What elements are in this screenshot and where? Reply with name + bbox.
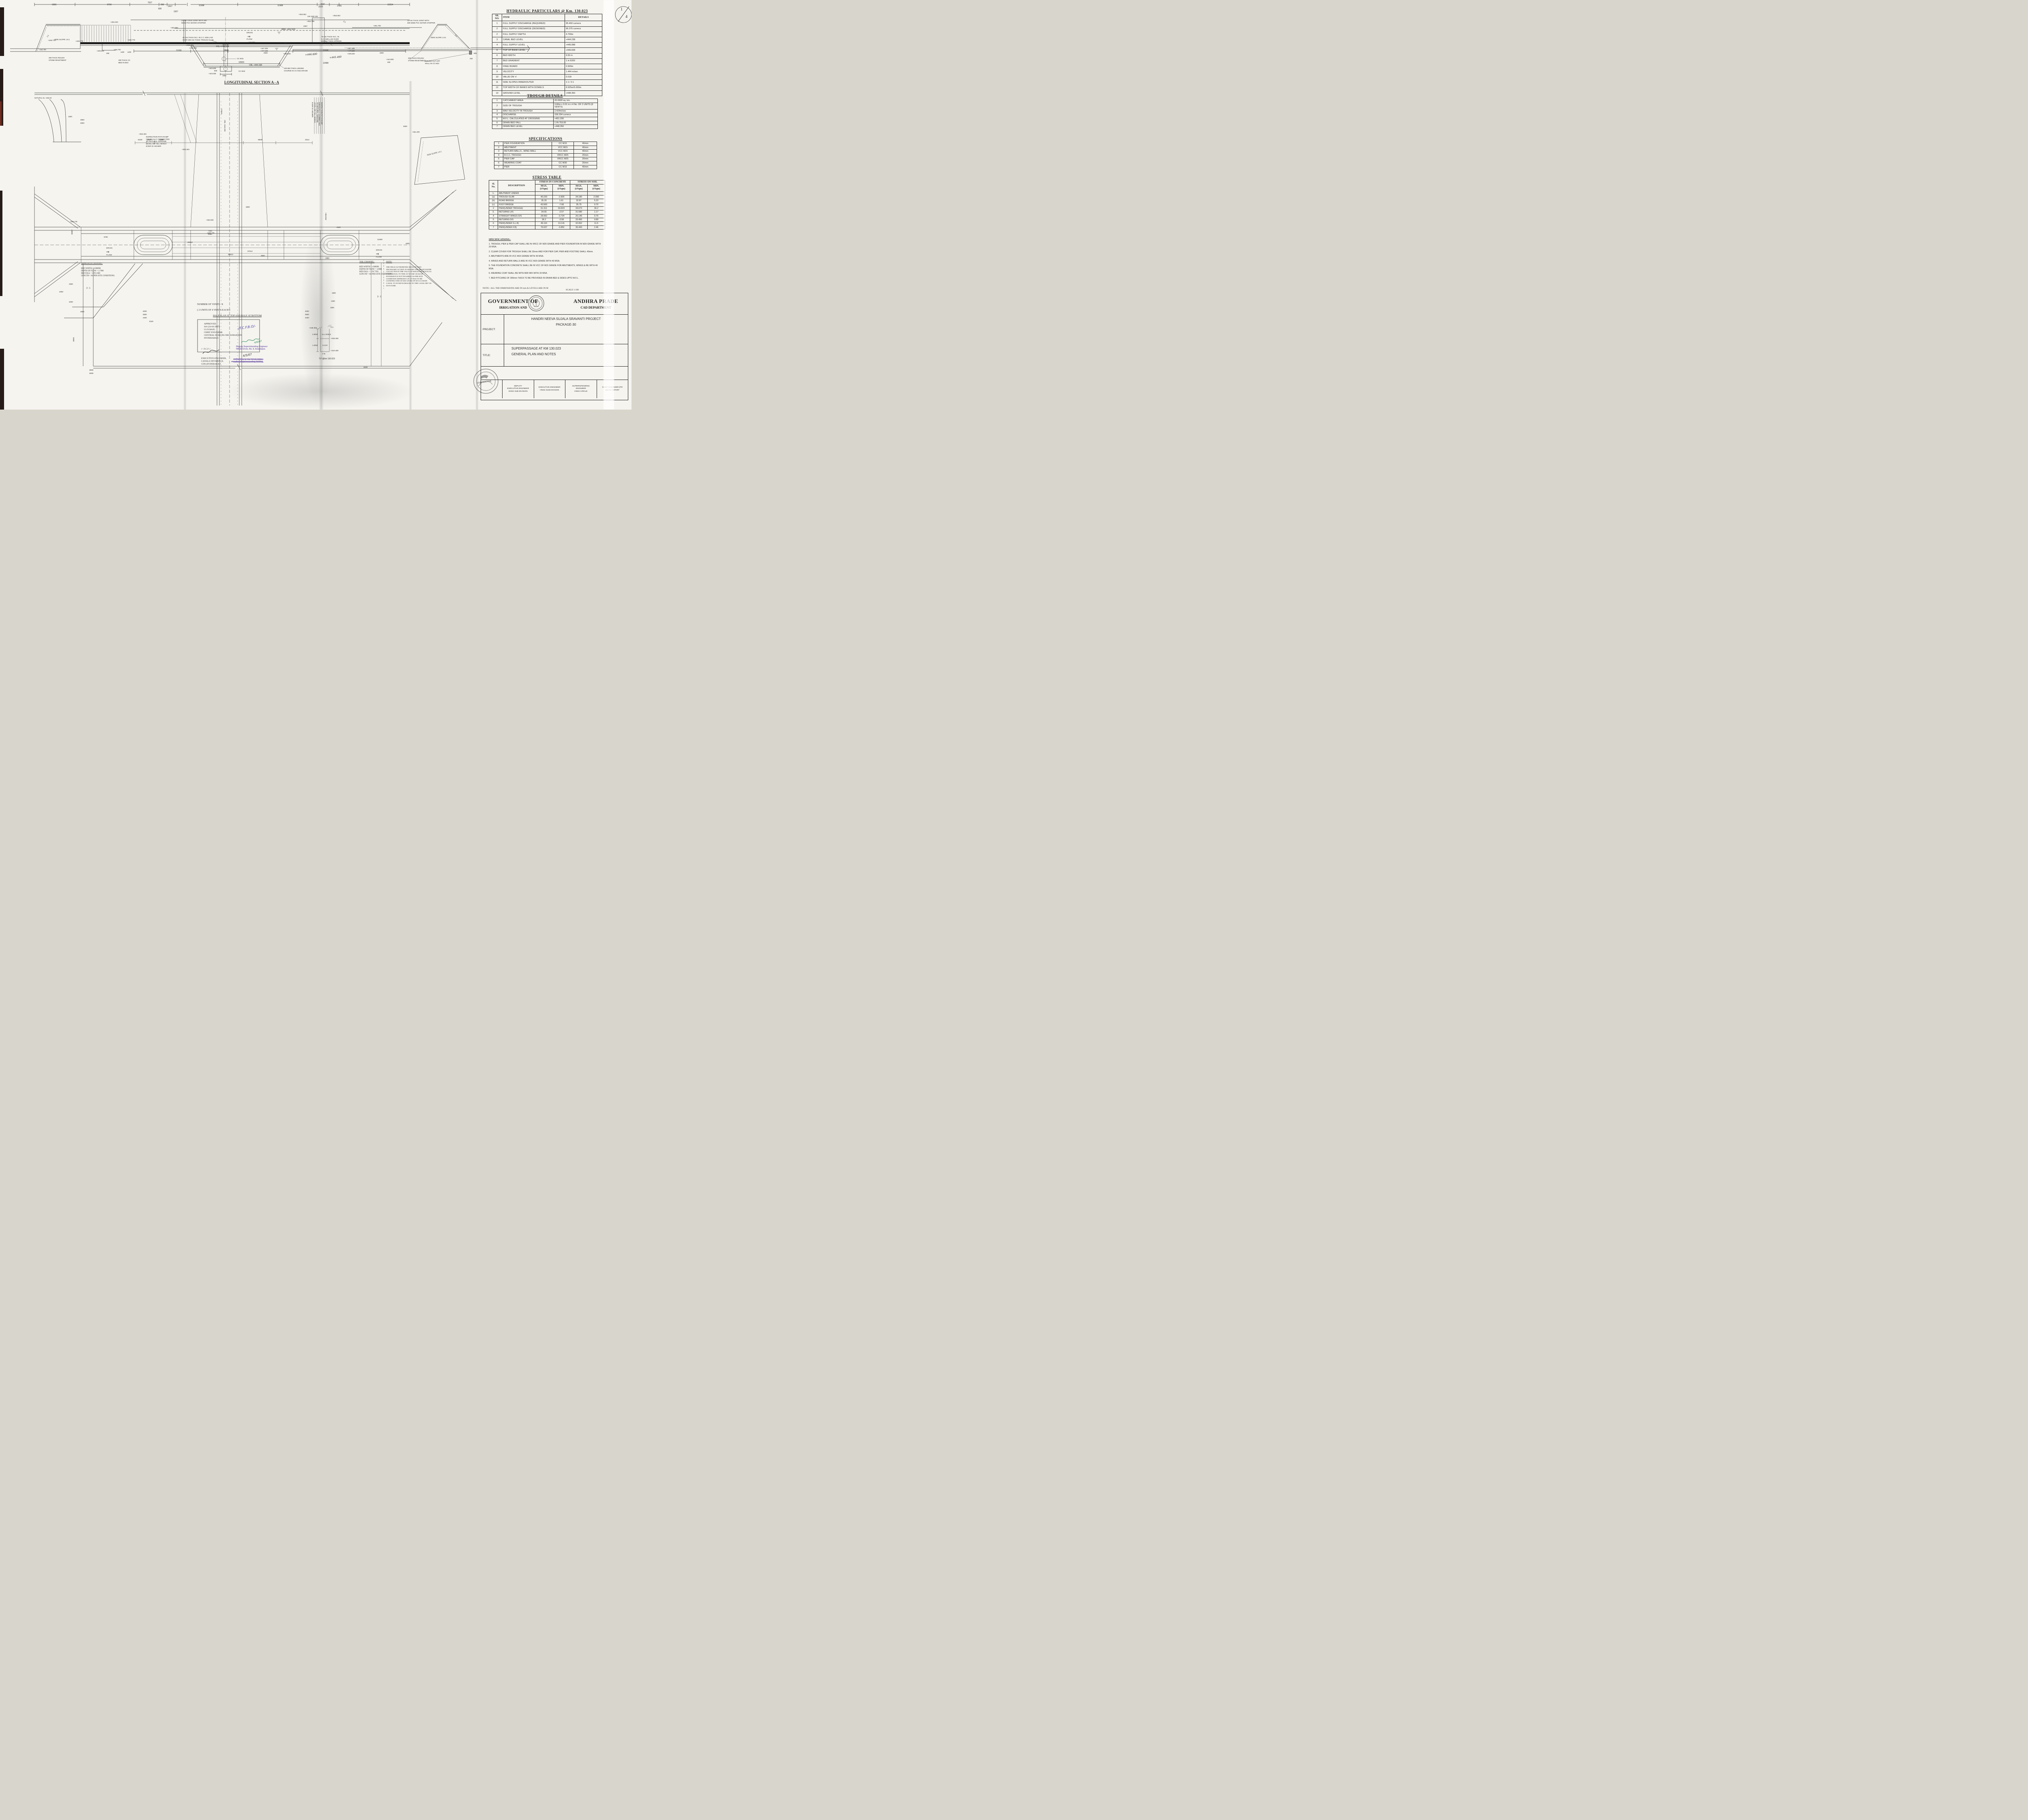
cell-details: 2.424m/sec	[554, 109, 598, 113]
cell-no: 3	[492, 37, 502, 42]
annotation-label: 2427	[168, 5, 172, 8]
cell-description: STRAIGHT WINGS D/S	[498, 214, 535, 218]
annotation-label: +449.778	[207, 232, 214, 234]
annotation-label: ⇒	[376, 252, 379, 256]
cell-item: BED GRADIENT	[502, 58, 565, 64]
project-row: PROJECT: HANDRI NEEVA SUJALA SRAVANTI PR…	[481, 315, 628, 344]
cell-concrete-max: 43.500	[535, 203, 553, 206]
annotation-label: +451.700	[373, 25, 381, 27]
annotation-label: 2000	[59, 291, 63, 293]
annotation-label: +449.388	[186, 44, 193, 47]
org-left: GOVERNMENT OF IRRIGATION AND	[481, 298, 545, 309]
cell-soil-max: 26.149	[570, 214, 588, 218]
annotation-label: 7238	[159, 139, 163, 142]
annotation-label: +452.500	[206, 219, 213, 221]
annotation-label: ALL SOILS	[322, 333, 331, 336]
annotation-label: 2600	[337, 226, 341, 229]
org-name-left: GOVERNMENT OF	[481, 298, 545, 305]
hydraulic-particulars-table: HYDRAULIC PARTICULARS @ Km. 130.023 SR. …	[492, 9, 602, 96]
cell-details: +444.238	[565, 37, 602, 42]
annotation-label: // .T.C.F //	[201, 348, 211, 351]
table-row: 1 PIER FOUNDATION CC M15 40mm	[494, 142, 597, 146]
cell-item: TOP WIDTH OF BANKS WITH DOWELS	[502, 85, 565, 90]
annotation-label: +448.350	[309, 327, 317, 329]
table-row: 1 FULL SUPPLY DISCHARGE (REQUIRED) 95.46…	[492, 21, 602, 26]
annotation-label: 3900	[80, 119, 84, 121]
annotation-label: 9500	[258, 139, 262, 142]
cell-no: 2	[489, 206, 498, 210]
annotation-label: 4400	[143, 317, 147, 319]
cell-details: 0.018	[565, 75, 602, 80]
cell-item: WEARING COAT	[503, 161, 552, 165]
cell-details: +448.350	[554, 125, 598, 129]
spec-note-item: 6. WEARING COAT SHALL BE WITH M30 MIX WI…	[489, 272, 603, 275]
annotation-label: CC M15	[237, 58, 243, 60]
annotation-label: +443.638	[208, 67, 216, 70]
cell-concrete-min: -2.830	[553, 195, 570, 199]
annotation-label: +444.800	[386, 58, 393, 61]
stress-title: STRESS TABLE	[489, 175, 605, 179]
col-header-slno: Sl. No.	[489, 180, 498, 192]
annotation-label: 600	[474, 52, 477, 55]
annotation-label: 600	[158, 8, 161, 10]
annotation-label: 3600	[80, 311, 84, 313]
cell-no: 9	[492, 69, 502, 75]
annotation-label: SIDE SLOPE 1.5:1	[431, 36, 446, 39]
table-row: 6 WEARING COAT CC M30 20mm	[494, 161, 597, 165]
annotation-label: CC M15	[238, 70, 245, 73]
cell-concrete-max: 76.637	[535, 225, 553, 229]
annotation-label: +449.088	[189, 47, 197, 49]
signatory-ce: CHIEF ENGINEER (PR I&CAD DEPART	[597, 380, 628, 398]
cell-details: +449.088	[565, 43, 602, 48]
cell-no: 7	[489, 225, 498, 229]
cell-item: ABUTMENT	[503, 146, 552, 150]
annotation-label: +453.403	[110, 21, 118, 24]
cell-item: FULL SUPPLY DEPTH	[502, 32, 565, 37]
table-row: 2 FULL SUPPLY DEPTH 4.700m	[492, 32, 602, 37]
dept-name-left: IRRIGATION AND	[481, 306, 545, 309]
annotation-label: 1800	[332, 292, 336, 294]
annotation-label: 35612	[187, 241, 193, 244]
cell-item: CATCHMENT AREA	[502, 99, 554, 103]
annotation-label: FSL +448.938	[216, 45, 229, 48]
annotation-label: 12480	[377, 238, 382, 241]
cell-concrete-max: 36.2	[535, 218, 553, 221]
cell-size: 20mm	[574, 161, 597, 165]
cell-description: PIER(UNDER F.B)	[498, 225, 535, 229]
cell-no: 4	[492, 113, 502, 117]
annotation-label: 1000	[224, 49, 228, 52]
annotation-label: 4500	[406, 243, 410, 245]
cell-description: PIER(UNDER S.L.B)	[498, 222, 535, 225]
annotation-label: +444.700	[39, 49, 46, 51]
cell-no: 2	[492, 103, 502, 109]
annotation-label: +453.403	[139, 133, 146, 135]
annotation-label: 37612	[247, 250, 253, 253]
annotation-label: 43000	[71, 230, 73, 234]
cell-no: 3	[494, 150, 503, 154]
table-row: 3. RETURNS U/S 34.55 -2.57 31.580 1.17	[489, 210, 605, 214]
table-row: 2 ABUTMENT VCC M15 40mm	[494, 146, 597, 150]
annotation-label: 4400	[305, 317, 309, 319]
cell-details: 1:1 / 2:1	[565, 80, 602, 85]
annotation-label: 1400	[120, 51, 124, 53]
title-block-header: GOVERNMENT OF IRRIGATION AND ANDHRA PRAD…	[481, 293, 628, 315]
annotation-label: 3900	[89, 369, 93, 371]
spec-notes-heading: SPECIFICATIONS:-	[489, 238, 603, 242]
cell-item: M.F.L. CALCULATED AT CROSSING	[502, 117, 554, 121]
annotation-label: 7527	[148, 2, 152, 4]
longitudinal-section-linework	[10, 3, 530, 80]
cell-concrete-min: 1.61	[553, 199, 570, 203]
cell-grade: CC M15	[552, 142, 574, 146]
cell-details: 1.444 m/sec	[565, 69, 602, 75]
org-name-right: ANDHRA PRADE	[564, 298, 628, 305]
cell-no: 7	[492, 58, 502, 64]
cell-concrete-max	[535, 191, 553, 195]
table-row: 9 VELOCITY 1.444 m/sec	[492, 69, 602, 75]
annotation-label: 300 THICK ROUGH STONE REVETMENT	[408, 57, 425, 62]
cell-no: 7	[494, 165, 503, 169]
cell-no: 6	[489, 222, 498, 225]
annotation-label: 4	[625, 15, 627, 20]
annotation-label: F.R	[322, 353, 325, 355]
annotation-label: 8790	[104, 236, 108, 238]
cell-grade: CC M30	[552, 161, 574, 165]
cell-item: CANAL BED LEVEL	[502, 37, 565, 42]
annotation-label: 1800	[222, 75, 226, 77]
annotation-label: FLOW	[106, 254, 112, 257]
annotation-label: INSPECTION PATH RAMP GRADUALLY CONNECTED…	[311, 102, 323, 126]
annotation-label: 450	[470, 58, 473, 60]
spec-note-item: 2. CLEAR COVER FOR TROUGH SHALL BE 25mm …	[489, 251, 603, 254]
hydraulic-title: HYDRAULIC PARTICULARS @ Km. 130.023	[492, 9, 602, 13]
annotation-label: 1200	[127, 51, 131, 53]
table-row: 6 PIER(UNDER S.L.B) 49.116 13.141 32.062…	[489, 222, 605, 225]
table-row: 3 CANAL BED LEVEL +444.238	[492, 37, 602, 42]
annotation-label: +448.400	[97, 50, 104, 52]
table-row: 4 STRAIGHT WINGS D/S 28.992 -3.724 26.14…	[489, 214, 605, 218]
cell-concrete-max: 28.992	[535, 214, 553, 218]
cell-details: +451.200	[554, 117, 598, 121]
annotation-label: ⇒	[106, 250, 110, 254]
annotation-label: 12 mm THICK JOINT WITH 300 WIDE PVC WATE…	[407, 19, 435, 24]
cell-soil-min: 0.70	[588, 214, 605, 218]
annotation-label: 1300	[331, 300, 335, 303]
cell-size: 20mm	[574, 157, 597, 161]
annotation-label: +453.063	[299, 13, 306, 16]
annotation-label: 2225	[318, 6, 323, 8]
annotation-label: CANAL	[221, 109, 223, 115]
annotation-label: 3 : 1	[377, 296, 381, 298]
cell-item: R.C.C. TROUGH	[503, 153, 552, 157]
cell-details: 1 in 6200	[565, 58, 602, 64]
table-row: 1. ABUTMENT UNDER	[489, 191, 605, 195]
annotation-label: 11000	[323, 49, 329, 52]
annotation-label: 1500	[330, 307, 334, 309]
annotation-label: +447.225	[347, 50, 354, 52]
table-row: 3 RETURN WALLS , WING WALL VCC M15 40mm	[494, 150, 597, 154]
cell-no: 4	[494, 153, 503, 157]
cell-soil-max: 34.180	[570, 195, 588, 199]
cell-no: 5	[489, 218, 498, 221]
table-row: 1 CATCHMENT AREA 20.0600 sq. km.	[492, 99, 598, 103]
cell-item: RETURN WALLS , WING WALL	[503, 150, 552, 154]
cell-concrete-max: 49.116	[535, 222, 553, 225]
cell-description: ROAD BRIDGE	[498, 199, 535, 203]
annotation-label: +449.778	[75, 40, 83, 43]
table-row: 10 VALUE ON 'n' 0.018	[492, 75, 602, 80]
cell-item: FREE BOARD	[502, 64, 565, 69]
col-header-srno: SR. NO.	[492, 14, 502, 21]
cell-item: SIZE OF TROUGH	[502, 103, 554, 109]
cell-no: 1	[492, 21, 502, 26]
annotation-label: 2726	[337, 5, 342, 7]
page-number-circle	[615, 6, 632, 23]
annotation-label: 300 THICK ROUGH STONE REVETMENT	[49, 57, 66, 61]
table-row: 11 SIDE SLOPES INNER/OUTER 1:1 / 2:1	[492, 80, 602, 85]
cell-details: 0.900m	[565, 64, 602, 69]
annotation-label: HALF PLAN AT TOP AND HALF AT BOTTOM	[213, 315, 262, 318]
annotation-label: 2 : 1	[86, 287, 90, 290]
annotation-label: 3600	[305, 313, 309, 316]
cell-item: FULL SUPPLY DISCHARGE (DESIGNED)	[502, 26, 565, 32]
col-header-description: DESCRIPTION	[498, 180, 535, 192]
cell-size: 40mm	[574, 146, 597, 150]
annotation-label: 40 mm THICK W.C. IN C.C. M25 LAID OVER 2…	[183, 36, 213, 41]
annotation-label: 10500	[238, 61, 244, 64]
annotation-label: 300	[387, 61, 390, 64]
annotation-label: 2600	[264, 52, 268, 54]
cell-no: 1	[494, 142, 503, 146]
cell-no: 7	[492, 125, 502, 129]
col-header-item: ITEM	[502, 14, 565, 21]
annotation-label: LONGITUDINAL SECTION A - A	[224, 80, 279, 85]
col-header-smin: MIN. (t/Sqm)	[588, 185, 605, 191]
annotation-label: +446.625	[283, 53, 290, 55]
annotation-label: 2.90M	[312, 333, 318, 336]
cell-description: FOOT BRIDGE	[498, 203, 535, 206]
annotation-label: APPROACH CHANNEL:	[81, 263, 103, 265]
cell-no: 2	[494, 146, 503, 150]
annotation-label: Deputy Superintending Engineer HNSS Circ…	[231, 358, 263, 363]
annotation-label: +447.300	[260, 47, 268, 50]
cell-item: FULL SUPPLY DISCHARGE (REQUIRED)	[502, 21, 565, 26]
cell-no: (b)	[489, 199, 498, 203]
annotation-label: 3200	[363, 366, 367, 369]
table-row: (c) FOOT BRIDGE 43.500 -7.68 35.75 0.70	[489, 203, 605, 206]
cell-item: PIER FOUNDATION	[503, 142, 552, 146]
specifications-table: SPECIFICATIONS 1 PIER FOUNDATION CC M15 …	[494, 137, 597, 169]
cell-soil-min: 2.090	[588, 195, 605, 199]
cell-description: RETURNS U/S	[498, 210, 535, 214]
annotation-label: 5100	[138, 139, 142, 142]
annotation-label: ( 2 UNITS OF 4 VENTS EACH )	[197, 309, 230, 312]
annotation-label: +453.403	[182, 148, 189, 151]
stress-table: STRESS TABLE Sl. No. DESCRIPTION STRESS …	[489, 175, 605, 230]
annotation-label: T.P @km 130.023	[319, 358, 335, 360]
cell-concrete-min: -7.68	[553, 203, 570, 206]
cell-no: 12	[492, 85, 502, 90]
dept-name-right: CAD DEPARTMENT	[564, 306, 628, 309]
cell-soil-max: 36.443	[570, 225, 588, 229]
annotation-label: THE FIELD AUTHORITIES SHOULD TAKE NECESS…	[386, 266, 432, 287]
signatory-ee: EXECUTIVE ENGINEER HNSS SUB DIVISION	[534, 380, 566, 398]
cell-soil-max: 32.062	[570, 222, 588, 225]
spec-note-item: 3. ABUTMENTS ARE IN VCC M15 GRADE WITH 4…	[489, 255, 603, 258]
cell-size: 40mm	[574, 142, 597, 146]
table-row: 2 SIZE OF TROUGH 3.80m x 3.01 m x 4 No. …	[492, 103, 598, 109]
specification-notes: SPECIFICATIONS:- 1. TROUGH, PIER & PIER …	[489, 238, 603, 281]
annotation-label: 36612	[228, 253, 233, 256]
annotation-label: 2312	[305, 139, 309, 142]
table-row: 6 DRAIN BED FALL 1 IN 753.00	[492, 121, 598, 125]
annotation-label: +449.738	[247, 41, 255, 44]
col-header-details: DETAILS	[565, 14, 602, 21]
annotation-label: 2427	[147, 139, 152, 142]
trough-details-table: TROUGH DETAILS 1 CATCHMENT AREA 20.0600 …	[492, 94, 598, 129]
signatory-deputy-ee: DEPUTY EXECUTIVE ENGINEER HNSS SUB DIVIS…	[503, 380, 534, 398]
annotation-label: 5000	[52, 4, 56, 6]
col-header-concrete: STRESS IN CONCRETE	[535, 180, 570, 185]
cell-no: 6	[492, 121, 502, 125]
cell-size: 20mm	[574, 153, 597, 157]
annotation-label: 8400	[72, 337, 75, 341]
cell-item: PIER	[503, 165, 552, 169]
annotation-label: 225 1500 225	[307, 15, 318, 17]
annotation-label: 3800	[246, 206, 250, 208]
title-row: TITLE: SUPERPASSAGE AT KM 130.023 GENERA…	[481, 344, 628, 367]
cell-soil-max	[570, 191, 588, 195]
signature-strip: DEPUTY EXECUTIVE ENGINEER HNSS SUB DIVIS…	[481, 380, 628, 398]
cell-no: 4	[489, 214, 498, 218]
contractor-cell	[481, 380, 503, 398]
annotation-label: 1	[621, 7, 623, 13]
dimensions-note: NOTE:- ALL THE DIMENSIONS ARE IN mm & LE…	[483, 287, 548, 290]
annotation-label: 3600	[143, 313, 147, 316]
cell-concrete-min: -3.58	[553, 218, 570, 221]
cell-description: RETURNS D/S	[498, 218, 535, 221]
annotation-label: BED WIDTH = 43000M DEPTH OF FLOW = 2.70M…	[81, 268, 115, 277]
annotation-label: 250	[203, 42, 206, 44]
annotation-label: 3800	[261, 255, 265, 257]
cell-description: TROUGH SLAB	[498, 195, 535, 199]
cell-concrete-min: -2.57	[553, 210, 570, 214]
cell-concrete-max: 61.511	[535, 206, 553, 210]
annotation-label: FLOW	[247, 39, 252, 41]
cell-no: (c)	[489, 203, 498, 206]
annotation-label: CBL +444.238	[249, 64, 262, 67]
col-header-cmin: MIN. (t/Sqm)	[553, 185, 570, 191]
cell-soil-max: 31.580	[570, 210, 588, 214]
cell-details: 158.294 cumecs	[554, 113, 598, 117]
cell-size: 40mm	[574, 150, 597, 154]
cell-soil-min	[588, 191, 605, 195]
cell-no: 5	[492, 117, 502, 121]
cell-soil-min: 5.23	[588, 199, 605, 203]
cell-size: 40mm	[574, 165, 597, 169]
annotation-label: 8790	[107, 4, 112, 6]
table-row: 3 MAX VELOCITY IN TROUGH 2.424m/sec	[492, 109, 598, 113]
annotation-label: 4000	[143, 310, 147, 313]
spec-note-item: 4. WINGS AND RETURN WALLS ARE IN VCC M15…	[489, 260, 603, 263]
cell-concrete-min: -3.852	[553, 225, 570, 229]
annotation-label: 450x600 CUT-OFF WALL IN CC M10	[425, 60, 440, 64]
annotation-label: 12480	[323, 62, 329, 64]
cell-no: 6	[492, 53, 502, 58]
cell-soil-max: 35.75	[570, 203, 588, 206]
cell-item: DRAIN BED FALL	[502, 121, 554, 125]
annotation-label: INSPECTION PATH RAMP GRADUALLY CONNECTED…	[146, 136, 170, 148]
cell-no: 10	[492, 75, 502, 80]
cell-item: VALUE ON 'n'	[502, 75, 565, 80]
cell-no: 2	[492, 26, 502, 32]
cell-item: BED WIDTH	[502, 53, 565, 58]
annotation-label: G.L	[331, 326, 333, 328]
annotation-label: 200	[161, 4, 164, 6]
table-row: (b) ROAD BRIDGE 35.33 1.61 32.87 5.23	[489, 199, 605, 203]
table-row: 2 PIER(UNDER TROUGH) 61.511 60.823 34.67…	[489, 206, 605, 210]
annotation-label: 11988	[277, 4, 283, 7]
annotation-label: 4500	[89, 372, 93, 375]
annotation-label: 3000	[80, 122, 84, 124]
table-row: 4 FULL SUPPLY LEVEL +449.088	[492, 43, 602, 48]
specifications-title: SPECIFICATIONS	[494, 137, 597, 141]
annotation-label: +453.063	[333, 15, 340, 17]
table-row: 5 RETURNS D/S 36.2 -3.58 33.450 0.89	[489, 218, 605, 221]
table-row: 2 FULL SUPPLY DISCHARGE (DESIGNED) 96.37…	[492, 26, 602, 32]
table-row: 12 TOP WIDTH OF BANKS WITH DOWELS 8.925m…	[492, 85, 602, 90]
annotation-label: CBL +444.238	[224, 120, 226, 131]
cell-no: 11	[492, 80, 502, 85]
trough-title: TROUGH DETAILS	[492, 94, 598, 98]
title-label: TITLE:	[481, 344, 504, 366]
cell-concrete-min: -3.724	[553, 214, 570, 218]
annotation-label: 11988	[199, 4, 204, 7]
col-header-smax: MAX. (t/Sqm)	[570, 185, 588, 191]
cell-no: 5	[492, 48, 502, 53]
spec-note-item: 7. BED PITCHING OF 300mm THICK TO BE PRO…	[489, 277, 603, 280]
annotation-label: +443.038	[208, 73, 216, 75]
scale-note: SCALE 1:100	[566, 289, 579, 292]
cell-concrete-min: 60.823	[553, 206, 570, 210]
table-row: 4 R.C.C. TROUGH VRCC M25 20mm	[494, 153, 597, 157]
annotation-label: +444.450	[331, 350, 338, 352]
table-row: 8 FREE BOARD 0.900m	[492, 64, 602, 69]
cell-soil-min: 34.2	[588, 206, 605, 210]
table-row: 5 PIER CAP VRCC M25 20mm	[494, 157, 597, 161]
cell-item: DRAIN BED LEVEL	[502, 125, 554, 129]
annotation-label: +449.778	[127, 39, 135, 41]
cell-no: 1.	[489, 191, 498, 195]
annotation-label: +445.778	[70, 221, 77, 223]
annotation-label: 12 mm THICK JOINT WITH 300 WIDE PVC WATE…	[181, 19, 207, 24]
annotation-label: 2600	[380, 52, 384, 54]
cell-concrete-min: 13.141	[553, 222, 570, 225]
cell-grade: CC M15	[552, 165, 574, 169]
annotation-label: NOTE:	[386, 261, 392, 264]
annotation-label: 1.00M	[312, 344, 318, 347]
cell-soil-min: 0.89	[588, 218, 605, 221]
title-content: SUPERPASSAGE AT KM 130.023 GENERAL PLAN …	[504, 344, 628, 366]
cell-details: 95.460 cumecs	[565, 21, 602, 26]
annotation-label: 5100	[149, 320, 153, 323]
cell-soil-min: 1.17	[588, 210, 605, 214]
annotation-label: +449.778	[48, 39, 56, 42]
cell-no: 3.	[489, 210, 498, 214]
spec-note-item: 1. TROUGH, PIER & PIER CAP SHALL BE IN V…	[489, 243, 603, 249]
